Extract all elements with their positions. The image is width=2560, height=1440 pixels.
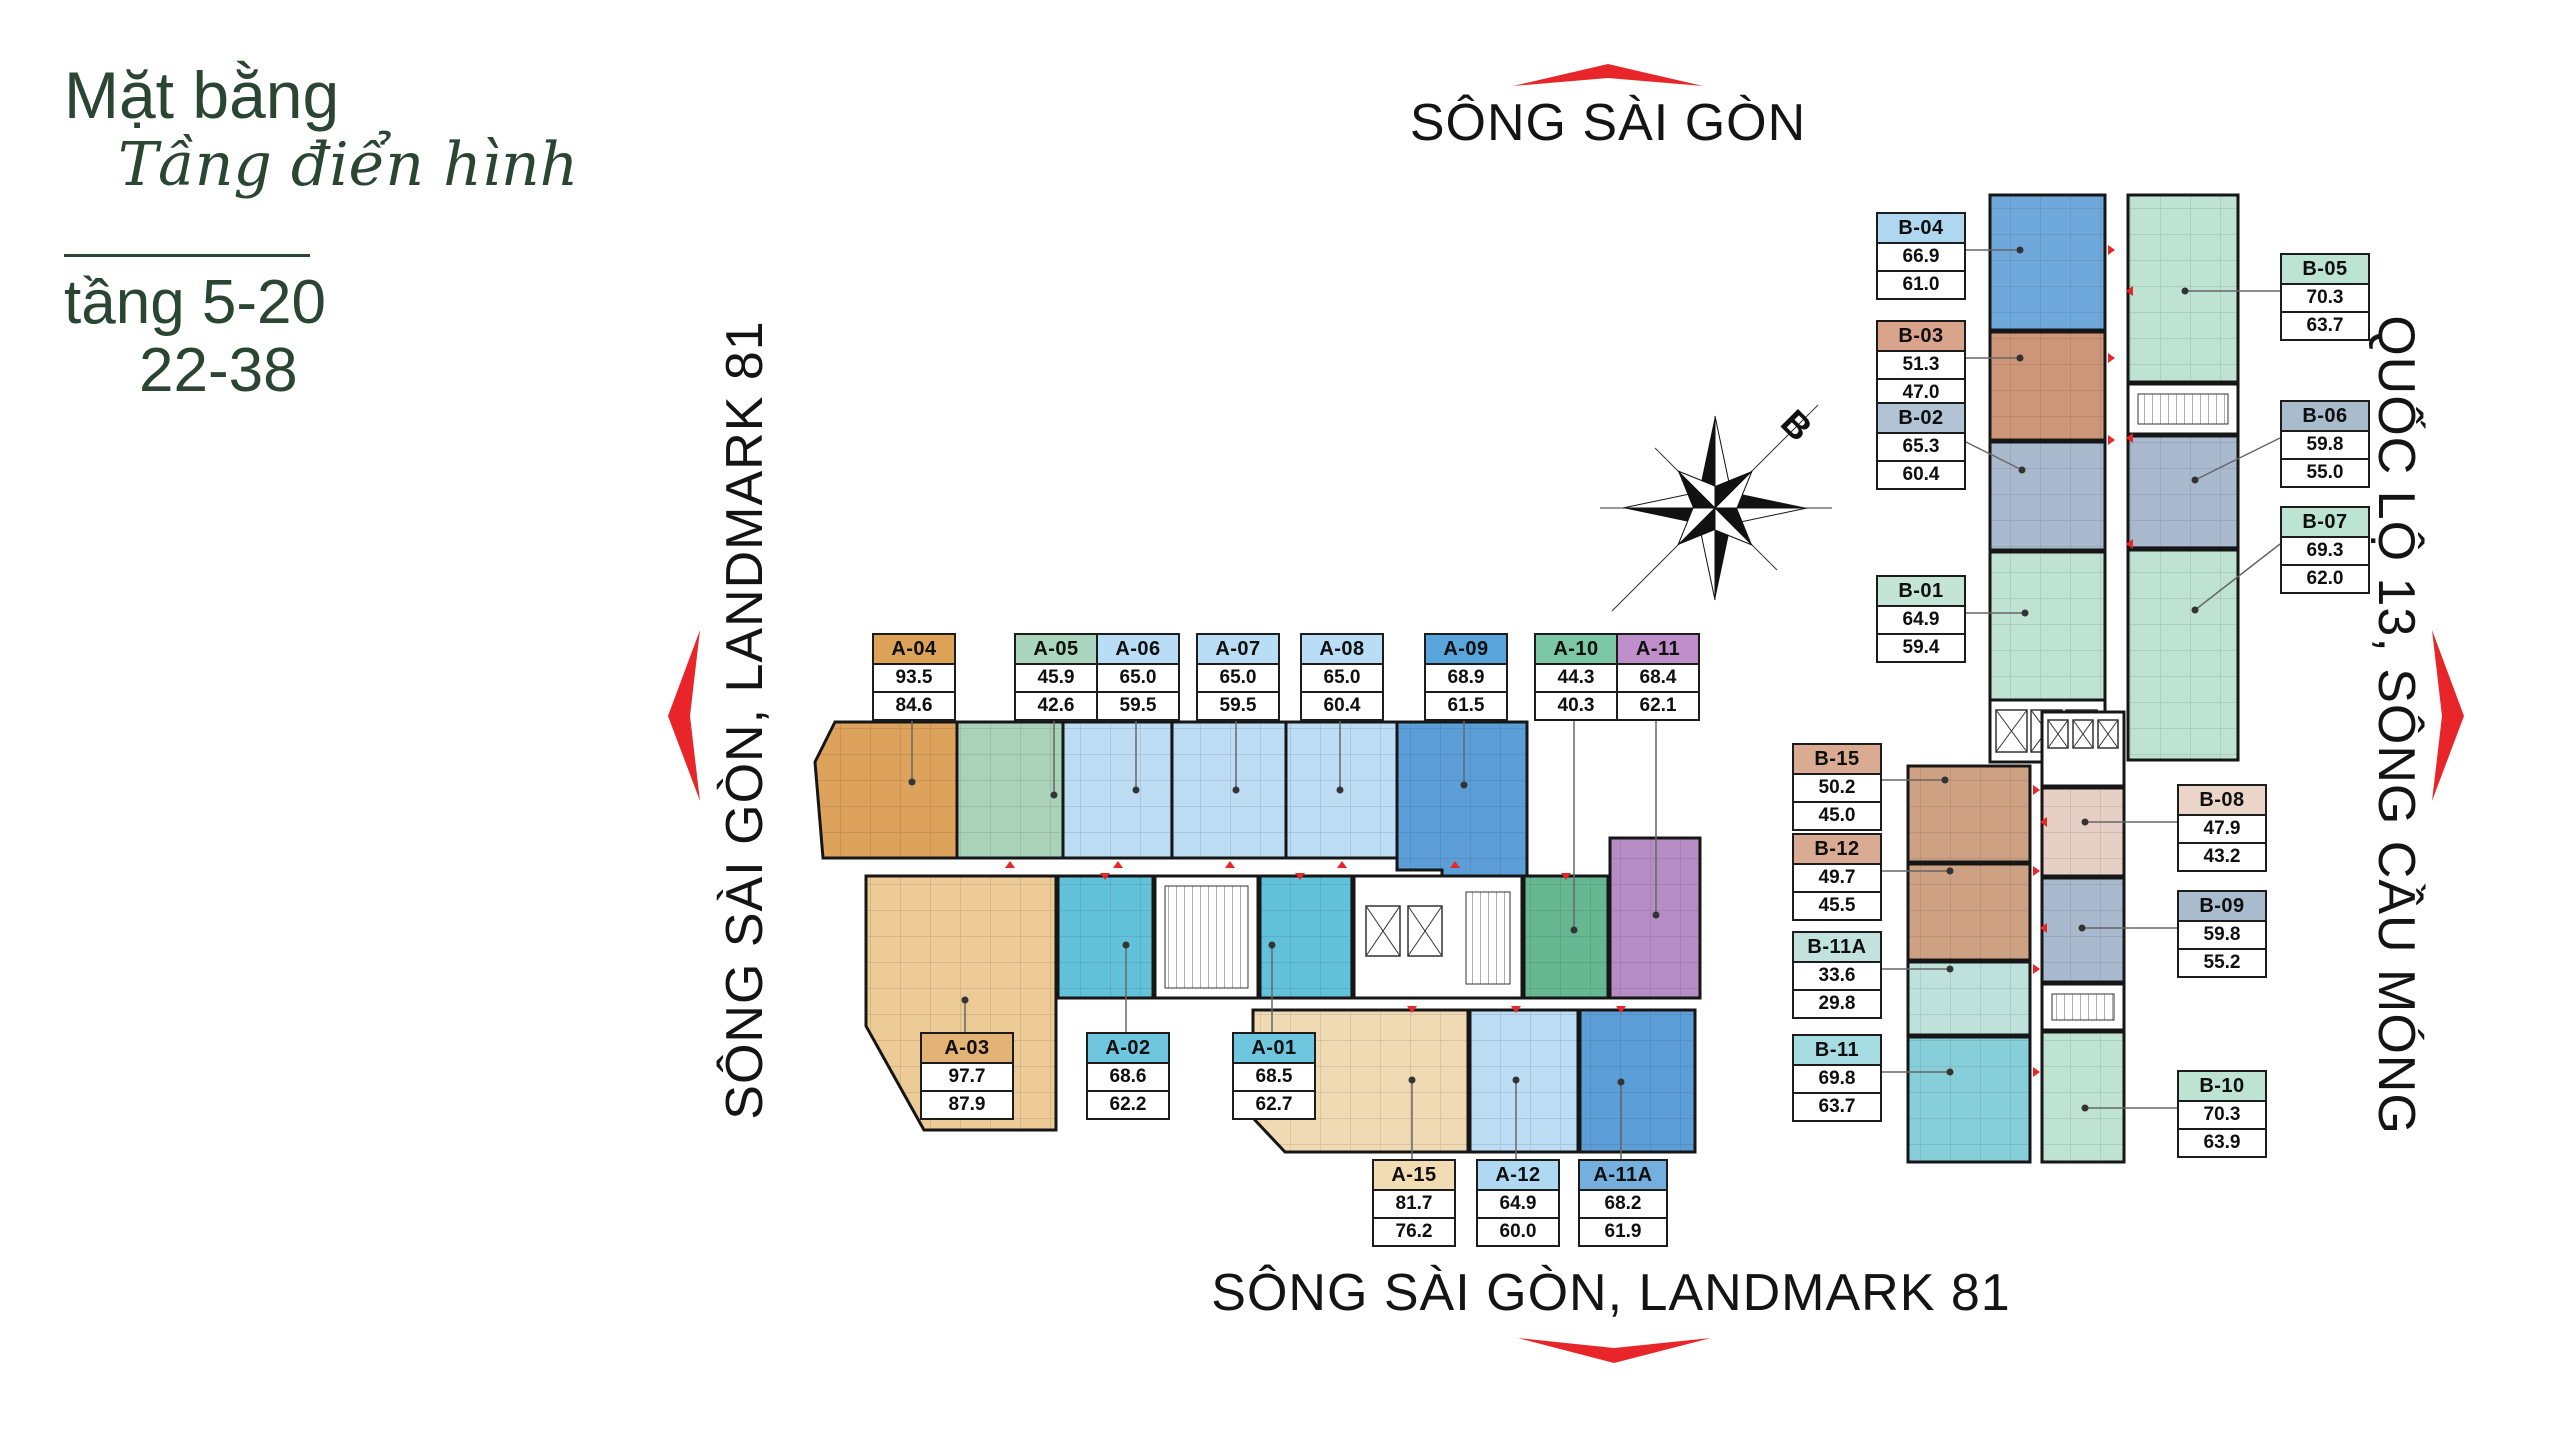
- door-marker-icon: [1337, 861, 1347, 868]
- unit-id: A-02: [1088, 1034, 1168, 1064]
- unit-id: B-15: [1794, 745, 1880, 775]
- unit-label-A-06: A-0665.059.5: [1096, 633, 1180, 721]
- net-area: 42.6: [1016, 691, 1096, 719]
- unit-label-B-09: B-0959.855.2: [2177, 890, 2267, 978]
- unit-label-B-01: B-0164.959.4: [1876, 575, 1966, 663]
- door-marker-icon: [2033, 964, 2040, 974]
- unit-id: A-04: [874, 635, 954, 665]
- gross-area: 45.9: [1016, 665, 1096, 691]
- net-area: 62.0: [2282, 564, 2368, 592]
- door-marker-icon: [2033, 866, 2040, 876]
- gross-area: 68.6: [1088, 1064, 1168, 1090]
- gross-area: 70.3: [2282, 285, 2368, 311]
- gross-area: 81.7: [1374, 1191, 1454, 1217]
- unit-label-B-06: B-0659.855.0: [2280, 400, 2370, 488]
- net-area: 29.8: [1794, 989, 1880, 1017]
- unit-label-B-12: B-1249.745.5: [1792, 833, 1882, 921]
- unit-id: B-10: [2179, 1072, 2265, 1102]
- net-area: 84.6: [874, 691, 954, 719]
- unit-label-B-11: B-1169.863.7: [1792, 1034, 1882, 1122]
- unit-id: B-03: [1878, 322, 1964, 352]
- unit-id: A-01: [1234, 1034, 1314, 1064]
- door-marker-icon: [2033, 1067, 2040, 1077]
- unit-label-B-07: B-0769.362.0: [2280, 506, 2370, 594]
- gross-area: 47.9: [2179, 816, 2265, 842]
- gross-area: 59.8: [2282, 432, 2368, 458]
- unit-id: A-06: [1098, 635, 1178, 665]
- net-area: 60.0: [1478, 1217, 1558, 1245]
- unit-id: A-05: [1016, 635, 1096, 665]
- door-marker-icon: [2108, 435, 2115, 445]
- gross-area: 69.3: [2282, 538, 2368, 564]
- gross-area: 65.0: [1098, 665, 1178, 691]
- net-area: 76.2: [1374, 1217, 1454, 1245]
- net-area: 62.1: [1618, 691, 1698, 719]
- door-marker-icon: [2108, 245, 2115, 255]
- unit-label-A-01: A-0168.562.7: [1232, 1032, 1316, 1120]
- gross-area: 93.5: [874, 665, 954, 691]
- unit-id: A-03: [922, 1034, 1012, 1064]
- unit-id: A-08: [1302, 635, 1382, 665]
- unit-label-B-02: B-0265.360.4: [1876, 402, 1966, 490]
- door-marker-icon: [1225, 861, 1235, 868]
- compass-north-letter: B: [1773, 401, 1820, 448]
- gross-area: 68.5: [1234, 1064, 1314, 1090]
- gross-area: 66.9: [1878, 244, 1964, 270]
- gross-area: 44.3: [1536, 665, 1616, 691]
- net-area: 63.7: [1794, 1092, 1880, 1120]
- unit-label-A-07: A-0765.059.5: [1196, 633, 1280, 721]
- net-area: 55.2: [2179, 948, 2265, 976]
- net-area: 61.9: [1580, 1217, 1666, 1245]
- net-area: 60.4: [1302, 691, 1382, 719]
- gross-area: 64.9: [1878, 607, 1964, 633]
- net-area: 62.7: [1234, 1090, 1314, 1118]
- unit-label-A-10: A-1044.340.3: [1534, 633, 1618, 721]
- unit-label-A-09: A-0968.961.5: [1424, 633, 1508, 721]
- unit-label-A-11A: A-11A68.261.9: [1578, 1159, 1668, 1247]
- net-area: 63.7: [2282, 311, 2368, 339]
- unit-label-B-05: B-0570.363.7: [2280, 253, 2370, 341]
- net-area: 59.4: [1878, 633, 1964, 661]
- net-area: 63.9: [2179, 1128, 2265, 1156]
- unit-id: B-12: [1794, 835, 1880, 865]
- unit-id: A-07: [1198, 635, 1278, 665]
- unit-label-B-11A: B-11A33.629.8: [1792, 931, 1882, 1019]
- gross-area: 49.7: [1794, 865, 1880, 891]
- unit-id: A-10: [1536, 635, 1616, 665]
- gross-area: 50.2: [1794, 775, 1880, 801]
- net-area: 55.0: [2282, 458, 2368, 486]
- door-marker-icon: [2033, 785, 2040, 795]
- unit-id: A-09: [1426, 635, 1506, 665]
- unit-label-B-15: B-1550.245.0: [1792, 743, 1882, 831]
- net-area: 45.5: [1794, 891, 1880, 919]
- net-area: 61.5: [1426, 691, 1506, 719]
- unit-id: B-05: [2282, 255, 2368, 285]
- unit-id: B-01: [1878, 577, 1964, 607]
- unit-id: A-12: [1478, 1161, 1558, 1191]
- gross-area: 59.8: [2179, 922, 2265, 948]
- unit-label-A-03: A-0397.787.9: [920, 1032, 1014, 1120]
- door-marker-icon: [2108, 353, 2115, 363]
- unit-label-B-10: B-1070.363.9: [2177, 1070, 2267, 1158]
- gross-area: 68.9: [1426, 665, 1506, 691]
- gross-area: 65.3: [1878, 434, 1964, 460]
- net-area: 45.0: [1794, 801, 1880, 829]
- floor-plan-page: Mặt bằng Tầng điển hình tầng 5-20 22-38 …: [0, 0, 2560, 1440]
- floor-plan-drawing: B: [0, 0, 2560, 1440]
- unit-label-A-12: A-1264.960.0: [1476, 1159, 1560, 1247]
- unit-id: B-06: [2282, 402, 2368, 432]
- unit-label-B-03: B-0351.347.0: [1876, 320, 1966, 408]
- net-area: 40.3: [1536, 691, 1616, 719]
- gross-area: 70.3: [2179, 1102, 2265, 1128]
- net-area: 87.9: [922, 1090, 1012, 1118]
- gross-area: 64.9: [1478, 1191, 1558, 1217]
- gross-area: 65.0: [1302, 665, 1382, 691]
- unit-id: A-15: [1374, 1161, 1454, 1191]
- net-area: 62.2: [1088, 1090, 1168, 1118]
- gross-area: 33.6: [1794, 963, 1880, 989]
- net-area: 59.5: [1198, 691, 1278, 719]
- unit-label-A-04: A-0493.584.6: [872, 633, 956, 721]
- unit-label-B-08: B-0847.943.2: [2177, 784, 2267, 872]
- unit-id: B-11: [1794, 1036, 1880, 1066]
- unit-label-A-08: A-0865.060.4: [1300, 633, 1384, 721]
- unit-id: B-02: [1878, 404, 1964, 434]
- door-marker-icon: [1005, 861, 1015, 868]
- compass-rose-icon: B: [1600, 401, 1832, 611]
- gross-area: 51.3: [1878, 352, 1964, 378]
- gross-area: 69.8: [1794, 1066, 1880, 1092]
- net-area: 43.2: [2179, 842, 2265, 870]
- unit-label-A-15: A-1581.776.2: [1372, 1159, 1456, 1247]
- unit-id: B-09: [2179, 892, 2265, 922]
- unit-id: B-04: [1878, 214, 1964, 244]
- unit-label-B-04: B-0466.961.0: [1876, 212, 1966, 300]
- unit-label-A-05: A-0545.942.6: [1014, 633, 1098, 721]
- unit-id: A-11: [1618, 635, 1698, 665]
- unit-id: A-11A: [1580, 1161, 1666, 1191]
- unit-label-A-11: A-1168.462.1: [1616, 633, 1700, 721]
- unit-label-A-02: A-0268.662.2: [1086, 1032, 1170, 1120]
- unit-id: B-08: [2179, 786, 2265, 816]
- gross-area: 65.0: [1198, 665, 1278, 691]
- net-area: 60.4: [1878, 460, 1964, 488]
- gross-area: 97.7: [922, 1064, 1012, 1090]
- gross-area: 68.2: [1580, 1191, 1666, 1217]
- gross-area: 68.4: [1618, 665, 1698, 691]
- unit-id: B-11A: [1794, 933, 1880, 963]
- net-area: 59.5: [1098, 691, 1178, 719]
- door-marker-icon: [1113, 861, 1123, 868]
- net-area: 61.0: [1878, 270, 1964, 298]
- unit-id: B-07: [2282, 508, 2368, 538]
